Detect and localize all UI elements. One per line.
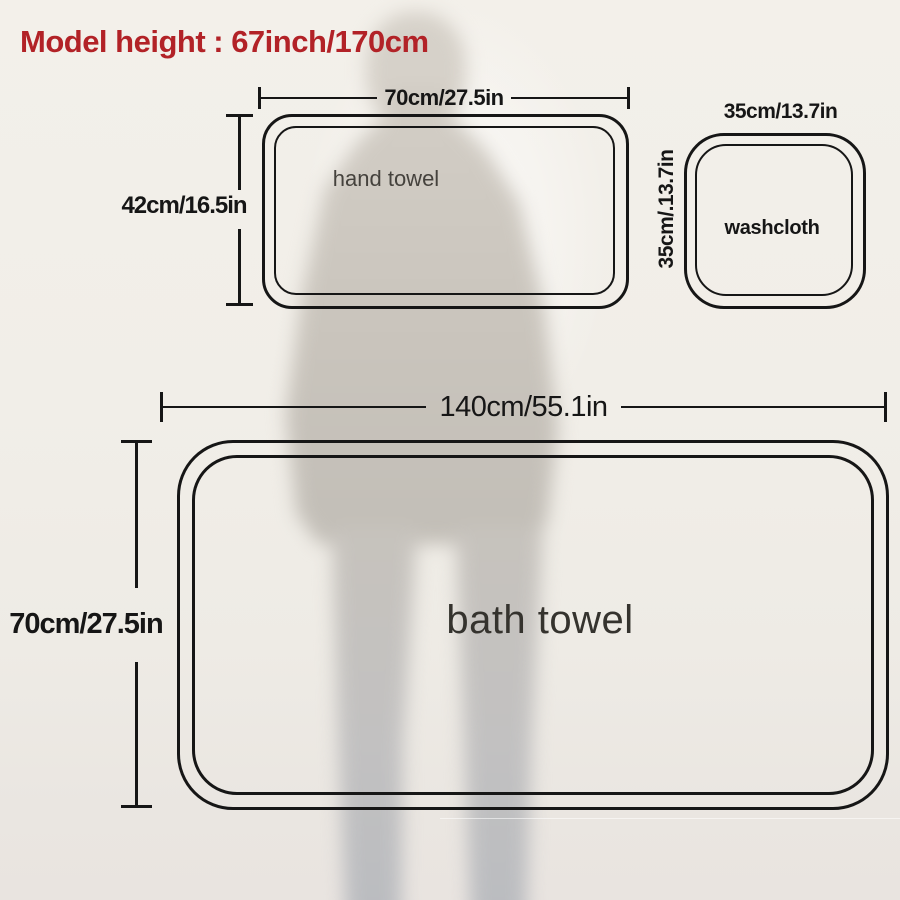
model-height-title: Model height : 67inch/170cm — [20, 24, 429, 60]
dimension-line — [135, 443, 138, 588]
dimension-line — [261, 97, 377, 100]
dimension-tick — [627, 87, 630, 109]
dimension-line — [238, 117, 241, 190]
bath-towel-width-dimension: 140cm/55.1in — [160, 392, 887, 422]
bath-towel-width-label: 140cm/55.1in — [426, 391, 620, 424]
diagram-layer: Model height : 67inch/170cm 70cm/27.5in … — [0, 0, 900, 900]
wall-floor-seam — [440, 818, 900, 819]
washcloth-height-label: 35cm/.13.7in — [655, 134, 679, 284]
hand-towel-label: hand towel — [286, 166, 486, 192]
washcloth-label: washcloth — [690, 217, 854, 240]
dimension-line — [511, 97, 627, 100]
hand-towel-inner-outline — [274, 126, 615, 295]
dimension-tick — [884, 392, 887, 422]
hand-towel-width-dimension: 70cm/27.5in — [258, 87, 630, 109]
dimension-tick — [121, 805, 152, 808]
dimension-line — [238, 229, 241, 303]
hand-towel-height-label: 42cm/16.5in — [108, 192, 260, 220]
towel-size-chart: Model height : 67inch/170cm 70cm/27.5in … — [0, 0, 900, 900]
dimension-line — [621, 406, 884, 409]
bath-towel-label: bath towel — [400, 598, 680, 643]
dimension-line — [163, 406, 426, 409]
dimension-tick — [226, 303, 253, 306]
hand-towel-width-label: 70cm/27.5in — [377, 85, 510, 111]
washcloth-width-label: 35cm/13.7in — [698, 100, 863, 124]
bath-towel-height-label: 70cm/27.5in — [0, 608, 172, 641]
dimension-line — [135, 662, 138, 805]
